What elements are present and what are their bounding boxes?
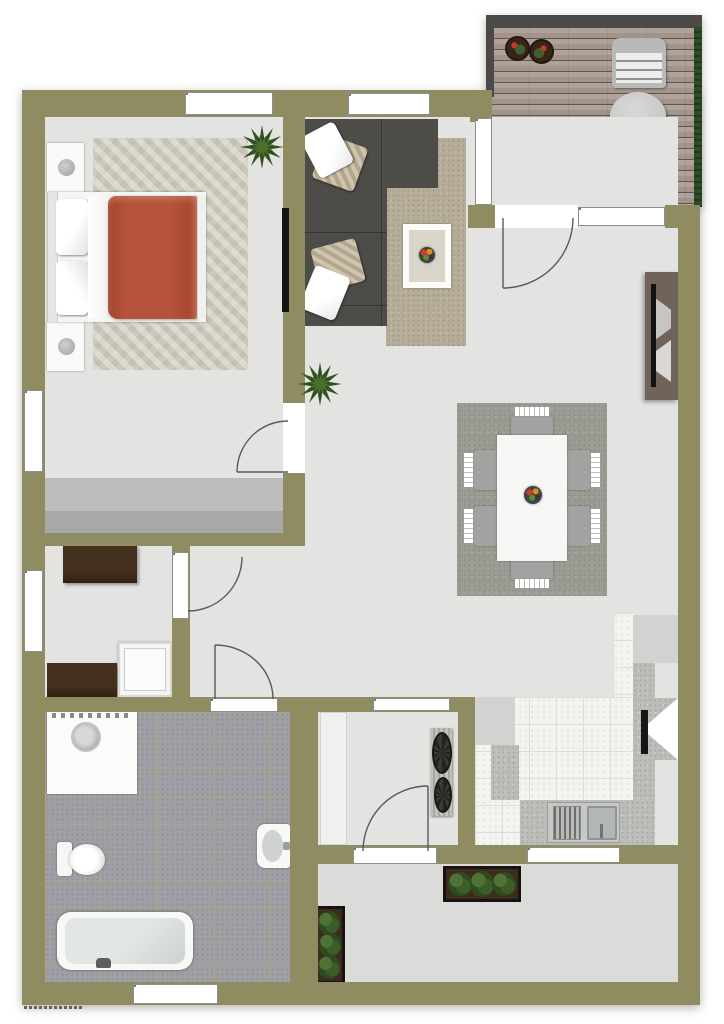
window-cap [186, 93, 188, 95]
bathtub-interior [65, 918, 185, 964]
kitchen-faucet [600, 824, 603, 838]
bed-pillow-bottom [56, 261, 88, 315]
sliding-door-storage [373, 698, 450, 711]
dining-chair-right-1 [567, 450, 591, 490]
storage-closet [320, 712, 347, 845]
hallway-cabinet-inner [124, 648, 166, 691]
planter-plant [319, 933, 341, 957]
door-swing-bathroom [212, 642, 278, 702]
dining-chair-right-2 [567, 506, 591, 546]
deck-hedge-screen [694, 27, 702, 207]
dining-chair-left-2-back [463, 508, 474, 544]
door-swing-hallway [185, 550, 247, 618]
window-cap [349, 94, 351, 96]
bed-footboard [197, 196, 206, 319]
door-swing-bedroom [230, 402, 294, 478]
flower-pot [505, 36, 530, 61]
table-lamp-bottom [58, 338, 75, 355]
tv-console [645, 272, 678, 400]
living-tv-screen [651, 284, 656, 387]
corner-appliance-glass [641, 710, 648, 754]
window-bathroom-bottom [133, 984, 218, 1004]
door-cap [173, 553, 175, 555]
window-left-hallway [24, 570, 43, 652]
deck-chair-top [612, 38, 666, 88]
dining-chair-top-back [514, 406, 550, 417]
wall-exterior-left [22, 90, 45, 1005]
plant-living [298, 362, 342, 406]
bathroom-basin-faucet [283, 842, 290, 850]
wall-bedroom-bottom [45, 533, 305, 546]
toilet-bowl [69, 844, 105, 875]
planter-plant [492, 872, 516, 896]
sectional-sofa-chaise [387, 119, 438, 188]
bedroom-wardrobe [45, 478, 283, 533]
window-cap [25, 391, 27, 393]
deck-wall-left [486, 15, 494, 97]
flower-pot [529, 39, 554, 64]
wall-exterior-right [678, 205, 700, 1005]
dining-chair-bottom-back [514, 578, 550, 589]
coffee-table-fruit-bowl [419, 247, 435, 263]
planter-plant [318, 955, 340, 979]
watermark-text [24, 1006, 82, 1009]
sofa-seam [381, 119, 382, 326]
window-living-top [348, 93, 430, 115]
terrace-planter-vertical [314, 906, 345, 984]
bed-blanket [108, 196, 198, 319]
dining-chair-bottom [511, 558, 553, 580]
kitchen-upper-cabinet [633, 615, 678, 663]
washing-machine-controls [52, 713, 132, 718]
window-cap [579, 208, 581, 210]
terrace-planter-horizontal [443, 866, 521, 902]
plant-bedroom [240, 125, 284, 169]
hallway-sideboard-bottom [47, 663, 117, 697]
window-cap [134, 985, 136, 987]
bathtub-faucet [96, 958, 111, 968]
door-swing-terrace [359, 782, 433, 854]
window-cap [374, 699, 376, 701]
window-cap [528, 848, 530, 850]
kitchen-drainer-grill [553, 806, 581, 840]
bicycle-wheel-front [432, 732, 452, 774]
dining-chair-right-1-back [590, 452, 601, 488]
window-living-balcony [578, 207, 665, 226]
table-lamp-top [58, 159, 75, 176]
bed-pillow-top [56, 199, 88, 255]
kitchen-floor-column [613, 613, 635, 697]
dining-chair-left-1 [474, 450, 498, 490]
window-left-bedroom [24, 390, 43, 472]
deck-wall-top [486, 15, 702, 28]
bedroom-tv-screen [282, 208, 289, 312]
door-swing-balcony [499, 215, 579, 293]
hallway-sideboard-top [63, 545, 137, 583]
washing-machine-drum [71, 722, 101, 752]
wall-balcony-band-right [665, 205, 700, 228]
dining-chair-left-1-back [463, 452, 474, 488]
planter-plant [448, 872, 472, 896]
sofa-seam [305, 232, 387, 233]
window-cap [476, 119, 478, 121]
bathroom-basin-bowl [262, 830, 283, 862]
bicycle-wheel-rear [434, 777, 452, 813]
dining-fruit-bowl [524, 486, 542, 504]
planter-plant [318, 911, 340, 935]
dining-chair-right-2-back [590, 508, 601, 544]
dining-chair-left-2 [474, 506, 498, 546]
wall-exterior-bottom [22, 982, 700, 1005]
window-bedroom-top [185, 92, 273, 115]
kitchen-cabinet-left [473, 697, 515, 745]
window-kitchen-bottom [527, 847, 620, 863]
deck-chair-slats [616, 53, 662, 83]
sliding-door-deck [475, 118, 492, 205]
door-cap [354, 848, 356, 850]
kitchen-counter-left [491, 745, 519, 800]
wall-storage-right [458, 697, 475, 863]
window-cap [25, 571, 27, 573]
floor-plan-canvas [0, 0, 724, 1024]
planter-plant [470, 871, 494, 897]
